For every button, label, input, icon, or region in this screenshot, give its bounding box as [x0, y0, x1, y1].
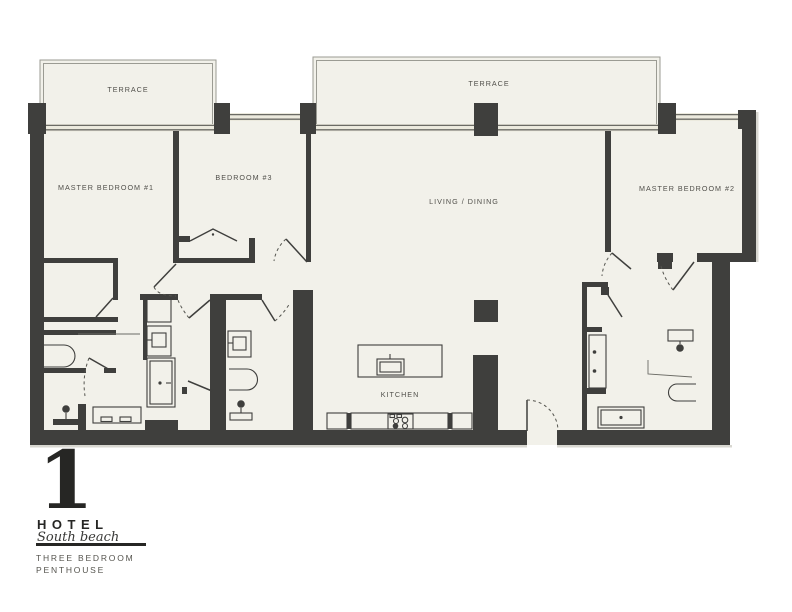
unit-type-line1: THREE BEDROOM: [36, 552, 135, 564]
label-master-bedroom-1: MASTER BEDROOM #1: [58, 183, 154, 192]
logo-numeral-1: 1: [38, 440, 94, 520]
logo-divider-rule: [36, 543, 146, 546]
floor-plan-drawing: TERRACE TERRACE MASTER BEDROOM #1 BEDROO…: [0, 0, 792, 612]
label-bedroom-3: BEDROOM #3: [215, 173, 272, 182]
unit-type-label: THREE BEDROOMPENTHOUSE: [36, 552, 135, 577]
label-master-bedroom-2: MASTER BEDROOM #2: [639, 184, 735, 193]
floor-plan-page: TERRACE TERRACE MASTER BEDROOM #1 BEDROO…: [0, 0, 792, 612]
label-kitchen: KITCHEN: [381, 390, 420, 399]
label-terrace-left: TERRACE: [107, 85, 148, 94]
label-terrace-right: TERRACE: [468, 79, 509, 88]
unit-type-line2: PENTHOUSE: [36, 564, 135, 576]
label-living-dining: LIVING / DINING: [429, 197, 499, 206]
